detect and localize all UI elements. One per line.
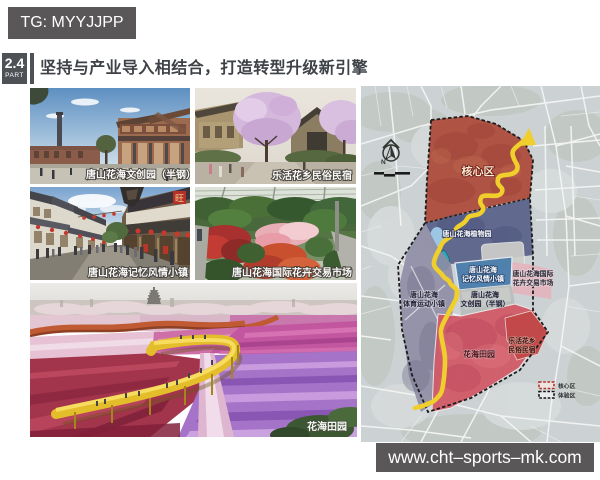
- svg-text:唐山花海: 唐山花海: [410, 290, 438, 299]
- svg-text:体育运动小镇: 体育运动小镇: [403, 299, 445, 308]
- svg-text:花海田园: 花海田园: [307, 420, 347, 433]
- svg-text:花卉交易市场: 花卉交易市场: [513, 278, 554, 287]
- svg-text:唐山花海植物园: 唐山花海植物园: [443, 229, 492, 238]
- svg-text:文创园（半钢）: 文创园（半钢）: [461, 299, 510, 308]
- svg-text:唐山花海: 唐山花海: [469, 265, 497, 274]
- svg-text:N: N: [381, 159, 386, 166]
- svg-text:核心区: 核心区: [462, 164, 495, 178]
- svg-text:核心区: 核心区: [558, 382, 576, 390]
- svg-text:唐山花海国际花卉交易市场: 唐山花海国际花卉交易市场: [232, 266, 352, 279]
- svg-text:乐活花乡: 乐活花乡: [508, 336, 535, 345]
- svg-text:乐活花乡民俗民宿: 乐活花乡民俗民宿: [272, 169, 352, 182]
- svg-text:唐山花海国际: 唐山花海国际: [513, 269, 554, 278]
- svg-text:旺: 旺: [175, 194, 184, 204]
- svg-text:唐山花海文创园（半钢）: 唐山花海文创园（半钢）: [86, 168, 190, 181]
- svg-text:民俗民宿: 民俗民宿: [508, 345, 535, 354]
- svg-text:记忆风情小镇: 记忆风情小镇: [462, 274, 504, 283]
- svg-text:唐山花海记忆风情小镇: 唐山花海记忆风情小镇: [88, 266, 188, 279]
- svg-text:体验区: 体验区: [558, 392, 576, 400]
- svg-text:唐山花海: 唐山花海: [471, 290, 499, 299]
- svg-text:花海田园: 花海田园: [463, 349, 495, 359]
